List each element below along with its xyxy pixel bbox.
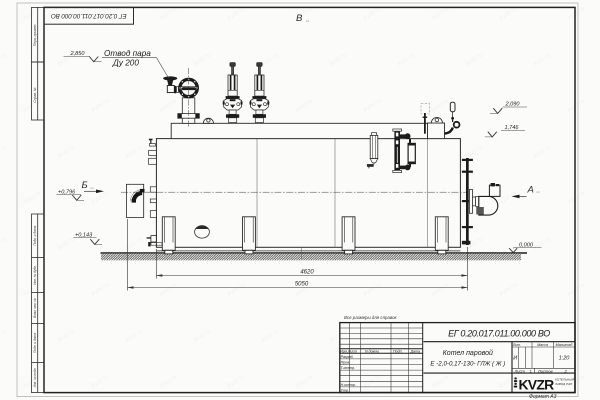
svg-text:2,090: 2,090 bbox=[505, 102, 521, 108]
svg-text:Изм.Лист: Изм.Лист bbox=[340, 349, 357, 353]
svg-text:А: А bbox=[527, 184, 534, 195]
svg-text:1:20: 1:20 bbox=[559, 356, 571, 362]
svg-text:Перв. примен.: Перв. примен. bbox=[33, 24, 37, 47]
svg-text:И: И bbox=[513, 356, 517, 362]
svg-text:Пров.: Пров. bbox=[341, 361, 350, 365]
svg-text:КОТЕЛЬНЫЙ: КОТЕЛЬНЫЙ bbox=[555, 378, 575, 382]
svg-text:Взам. инв. №: Взам. инв. № bbox=[33, 298, 37, 318]
svg-text:1: 1 bbox=[530, 368, 532, 373]
svg-text:Т.контр.: Т.контр. bbox=[341, 366, 356, 370]
svg-text:Котел паровой: Котел паровой bbox=[443, 349, 493, 357]
svg-text:N докум.: N докум. bbox=[365, 349, 380, 353]
svg-text:Подп. и дата: Подп. и дата bbox=[33, 226, 37, 246]
svg-text:Лист: Лист bbox=[514, 368, 526, 373]
svg-text:Е -2,0-0,17-130- ГЛЖ ( Ж ): Е -2,0-0,17-130- ГЛЖ ( Ж ) bbox=[430, 360, 505, 367]
svg-text:Масштаб: Масштаб bbox=[556, 343, 574, 347]
svg-text:Подп.: Подп. bbox=[393, 349, 403, 353]
svg-text:Листов: Листов bbox=[537, 368, 553, 373]
svg-text:Инв. № дубл.: Инв. № дубл. bbox=[33, 265, 37, 285]
svg-text:Инв. № подл.: Инв. № подл. bbox=[33, 367, 37, 387]
svg-text:Подп. и дата: Подп. и дата bbox=[33, 333, 37, 353]
svg-text:Ду 200: Ду 200 bbox=[112, 59, 139, 68]
svg-text:Разраб.: Разраб. bbox=[341, 355, 354, 359]
svg-text:KVZR: KVZR bbox=[519, 377, 555, 393]
svg-text:ЗАВОД РЭП: ЗАВОД РЭП bbox=[555, 382, 573, 386]
svg-text:ЕГ 0.20.017.011.00.000 ВО: ЕГ 0.20.017.011.00.000 ВО bbox=[448, 329, 550, 339]
svg-text:4620: 4620 bbox=[300, 270, 314, 276]
svg-text:Лит.: Лит. bbox=[512, 343, 521, 347]
svg-text:Формат А3: Формат А3 bbox=[529, 394, 557, 400]
svg-text:Все размеры для справок: Все размеры для справок bbox=[344, 315, 398, 320]
svg-text:ω: ω bbox=[306, 18, 309, 23]
svg-text:Дата: Дата bbox=[410, 349, 420, 353]
svg-text:ω: ω bbox=[91, 185, 94, 190]
svg-text:Б: Б bbox=[82, 180, 88, 191]
svg-text:Н.контр.: Н.контр. bbox=[341, 383, 356, 387]
svg-text:5050: 5050 bbox=[295, 282, 309, 288]
svg-text:Масса: Масса bbox=[537, 343, 548, 347]
svg-text:1,746: 1,746 bbox=[505, 125, 520, 131]
svg-text:Отвод пара: Отвод пара bbox=[104, 49, 151, 58]
svg-text:ЕГ 0.20.017.011.00.000 ВО: ЕГ 0.20.017.011.00.000 ВО bbox=[51, 12, 127, 19]
svg-text:Утв.: Утв. bbox=[341, 389, 349, 393]
svg-text:ω: ω bbox=[537, 189, 540, 194]
svg-text:Справ. №: Справ. № bbox=[33, 87, 37, 103]
svg-text:В: В bbox=[296, 13, 303, 24]
